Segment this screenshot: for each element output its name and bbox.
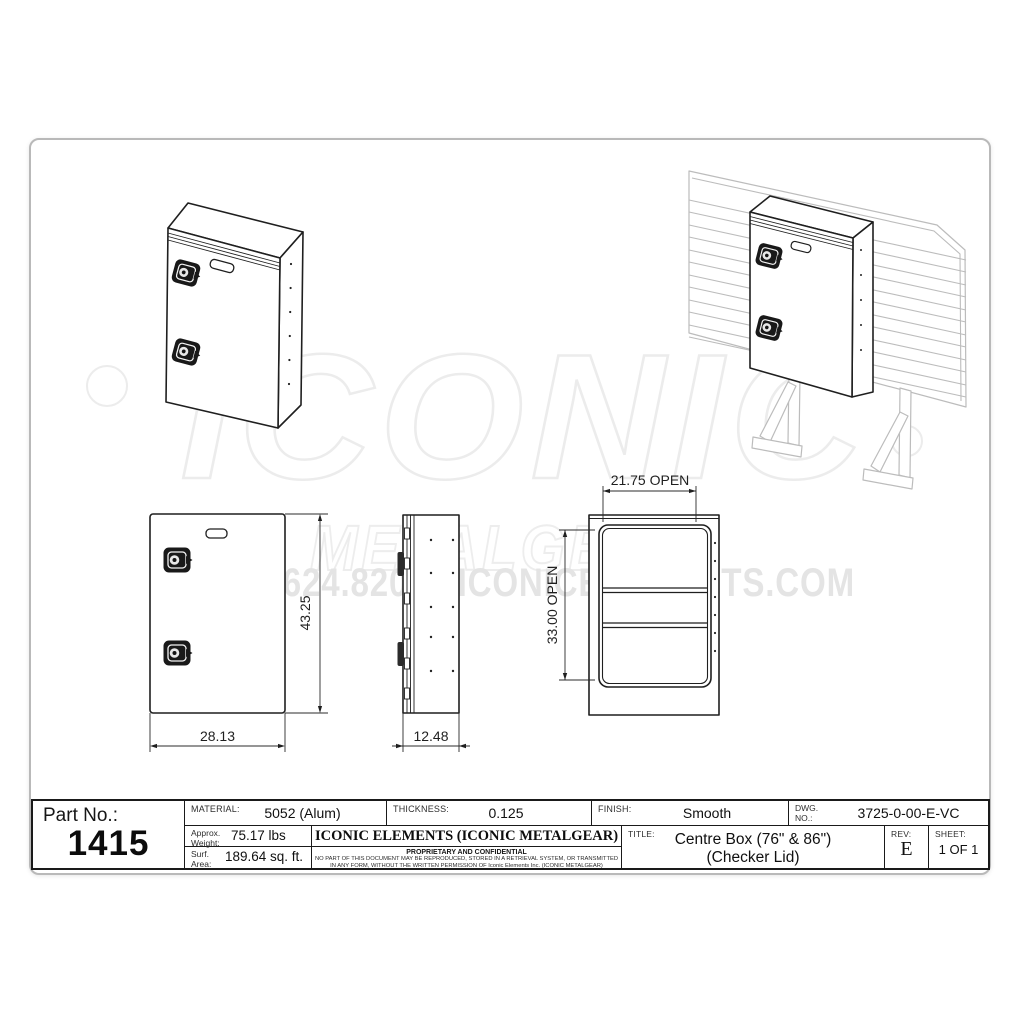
sheet-label: SHEET: [935, 829, 966, 839]
finish-cell: FINISH: Smooth [592, 801, 789, 826]
drawing-page: ICONIC METALGEAR 519.624.8209 | ICONICEL… [0, 0, 1024, 1024]
finish-label: FINISH: [598, 804, 631, 814]
weight-label: Approx. Weight: [191, 828, 220, 848]
part-number-cell: Part No.: 1415 [33, 801, 185, 868]
thickness-label: THICKNESS: [393, 804, 449, 814]
drawing-title-cell: TITLE: Centre Box (76" & 86") (Checker L… [622, 826, 885, 868]
proprietary-title: PROPRIETARY AND CONFIDENTIAL [312, 849, 621, 856]
dwg-number-value: 3725-0-00-E-VC [789, 801, 988, 825]
sheet-value: 1 OF 1 [929, 842, 988, 857]
thickness-cell: THICKNESS: 0.125 [387, 801, 592, 826]
drawing-title-label: TITLE: [628, 829, 655, 839]
revision-cell: REV: E [885, 826, 929, 868]
dwg-number-label: DWG. NO.: [795, 803, 818, 823]
surface-area-label: Surf. Area: [191, 849, 211, 869]
dwg-number-cell: DWG. NO.: 3725-0-00-E-VC [789, 801, 988, 826]
drawing-title-line2: (Checker Lid) [622, 849, 884, 867]
drawing-sheet-border [29, 138, 991, 875]
drawing-title-line1: Centre Box (76" & 86") [622, 831, 884, 849]
proprietary-body: NO PART OF THIS DOCUMENT MAY BE REPRODUC… [312, 856, 621, 870]
revision-label: REV: [891, 829, 911, 839]
sheet-cell: SHEET: 1 OF 1 [929, 826, 988, 868]
material-label: MATERIAL: [191, 804, 240, 814]
drawing-title: Centre Box (76" & 86") (Checker Lid) [622, 831, 884, 867]
title-block: Part No.: 1415 MATERIAL: 5052 (Alum) THI… [31, 799, 990, 870]
material-cell: MATERIAL: 5052 (Alum) [185, 801, 387, 826]
surface-area-cell: Surf. Area: 189.64 sq. ft. [185, 847, 312, 868]
revision-value: E [885, 838, 928, 861]
company-name: ICONIC ELEMENTS (ICONIC METALGEAR) [312, 826, 621, 847]
weight-cell: Approx. Weight: 75.17 lbs [185, 826, 312, 847]
part-number-value: 1415 [33, 824, 184, 864]
company-cell: ICONIC ELEMENTS (ICONIC METALGEAR) PROPR… [312, 826, 622, 868]
